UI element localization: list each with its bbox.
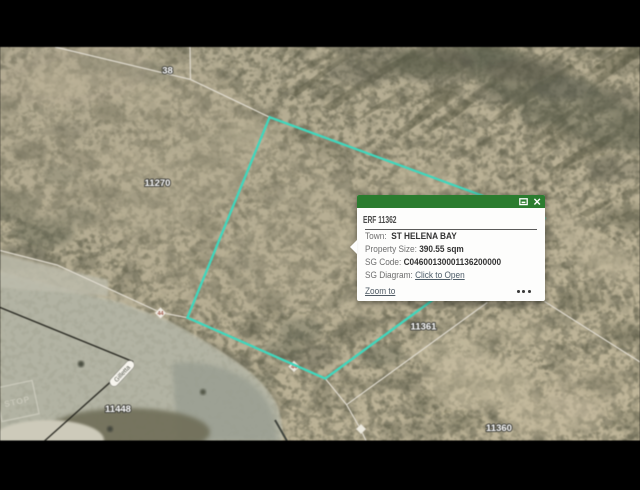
svg-text:44: 44 — [157, 311, 164, 317]
svg-text:11270: 11270 — [145, 178, 171, 189]
svg-text:11360: 11360 — [486, 423, 512, 434]
svg-text:38: 38 — [162, 66, 173, 77]
svg-text:11448: 11448 — [105, 404, 131, 415]
svg-text:11361: 11361 — [411, 322, 438, 333]
